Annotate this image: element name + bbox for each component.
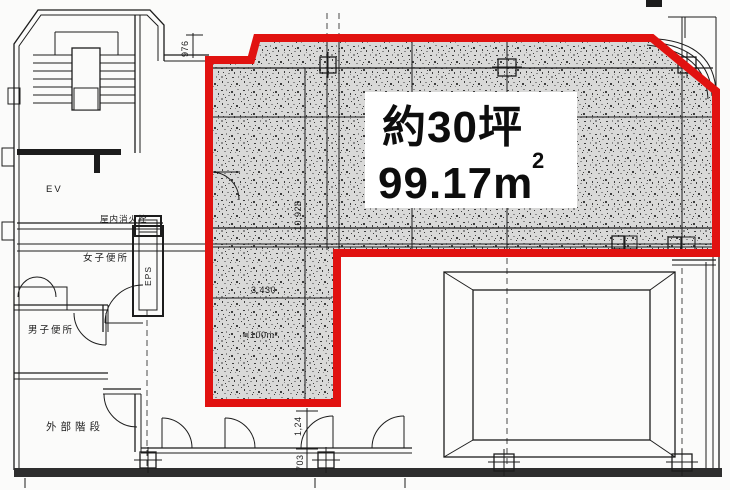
womens-toilet-label: 女子便所 <box>83 252 129 264</box>
approx-area-note: ≒100m² <box>242 330 278 340</box>
dimension-lower-2: 703 <box>295 454 305 471</box>
elevator-label: EV <box>46 184 63 195</box>
floor-plan: EV 屋内消火栓 EPS 女子便所 男子便所 外部階段 <box>0 0 730 490</box>
dimension-mid-width: 3,430 <box>251 285 276 295</box>
floor-plan-drawing: EV 屋内消火栓 EPS 女子便所 男子便所 外部階段 <box>0 0 730 490</box>
area-label-sqm: 99.17m <box>378 159 533 208</box>
area-label-superscript: 2 <box>532 148 544 173</box>
area-label-tsubo: 約30坪 <box>382 103 523 152</box>
eps-label: EPS <box>143 266 153 286</box>
external-stairs-label: 外部階段 <box>46 420 104 433</box>
dimension-top-width: 976 <box>180 40 190 57</box>
area-label-box: 約30坪 99.17m 2 <box>365 92 577 208</box>
dimension-main-depth: 10,928 <box>293 200 303 231</box>
dimension-lower-1: 1,24 <box>293 416 303 436</box>
mens-toilet-label: 男子便所 <box>28 324 74 336</box>
